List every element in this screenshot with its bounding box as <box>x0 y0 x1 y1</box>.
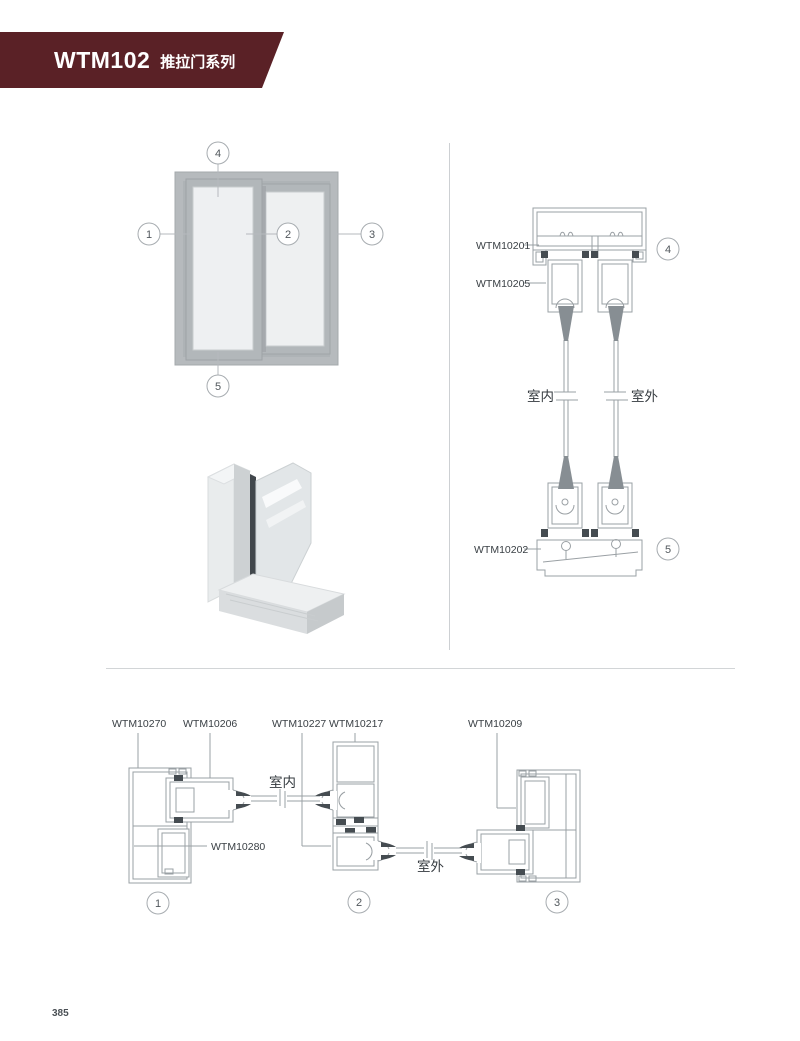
series-banner: WTM102 推拉门系列 <box>0 32 284 88</box>
insert-label: WTM10280 <box>211 841 265 853</box>
bottom-track-label: WTM10202 <box>474 544 528 556</box>
callout-1-number: 1 <box>146 229 152 241</box>
profile-corner-sample <box>208 463 344 634</box>
callout-3-number: 3 <box>554 897 560 909</box>
indoor-glass <box>251 789 320 808</box>
callout-2-number: 2 <box>285 229 291 241</box>
horizontal-divider <box>106 668 735 669</box>
callout-5-number: 5 <box>215 381 221 393</box>
series-name: 推拉门系列 <box>160 51 235 72</box>
callout-3-number: 3 <box>369 229 375 241</box>
indoor-label: 室内 <box>527 388 554 404</box>
horizontal-section-drawing: WTM10270 WTM10206 WTM10227 WTM10217 WTM1… <box>100 706 600 922</box>
indoor-label: 室内 <box>269 774 296 790</box>
vertical-section-labels: WTM10201 WTM10205 WTM10202 室内 室外 4 5 <box>474 238 679 560</box>
left-sash-profile <box>166 778 251 822</box>
outdoor-label: 室外 <box>631 388 659 404</box>
vertical-divider <box>449 143 450 650</box>
callout-4-number: 4 <box>665 244 671 256</box>
left-sash-label: WTM10206 <box>183 718 237 730</box>
interlock-label-b: WTM10217 <box>329 718 383 730</box>
top-track-label: WTM10201 <box>476 240 530 252</box>
isometric-profile-image <box>195 448 355 648</box>
top-sash-label: WTM10205 <box>476 278 530 290</box>
callout-2-number: 2 <box>356 897 362 909</box>
right-frame-label: WTM10209 <box>468 718 522 730</box>
callout-4-number: 4 <box>215 148 221 160</box>
callout-1-number: 1 <box>155 898 161 910</box>
page-number: 385 <box>52 1008 69 1019</box>
outdoor-label: 室外 <box>417 858 444 874</box>
right-sash-profile <box>459 825 533 875</box>
door-frame <box>175 172 338 365</box>
callout-5-number: 5 <box>665 544 671 556</box>
right-sash-glass <box>266 192 324 346</box>
catalog-page: WTM102 推拉门系列 4 1 2 <box>0 0 800 1041</box>
vertical-section-drawing: WTM10201 WTM10205 WTM10202 室内 室外 4 5 <box>462 196 690 598</box>
outdoor-glass <box>396 841 462 860</box>
elevation-diagram: 4 1 2 3 5 <box>120 130 405 420</box>
sash-shadow <box>262 186 266 352</box>
left-frame-label: WTM10270 <box>112 718 166 730</box>
glazing-gaskets <box>541 251 639 537</box>
left-sash-glass <box>193 187 253 350</box>
series-code: WTM102 <box>54 47 150 74</box>
interlock-profiles <box>315 742 396 870</box>
interlock-label-a: WTM10227 <box>272 718 326 730</box>
